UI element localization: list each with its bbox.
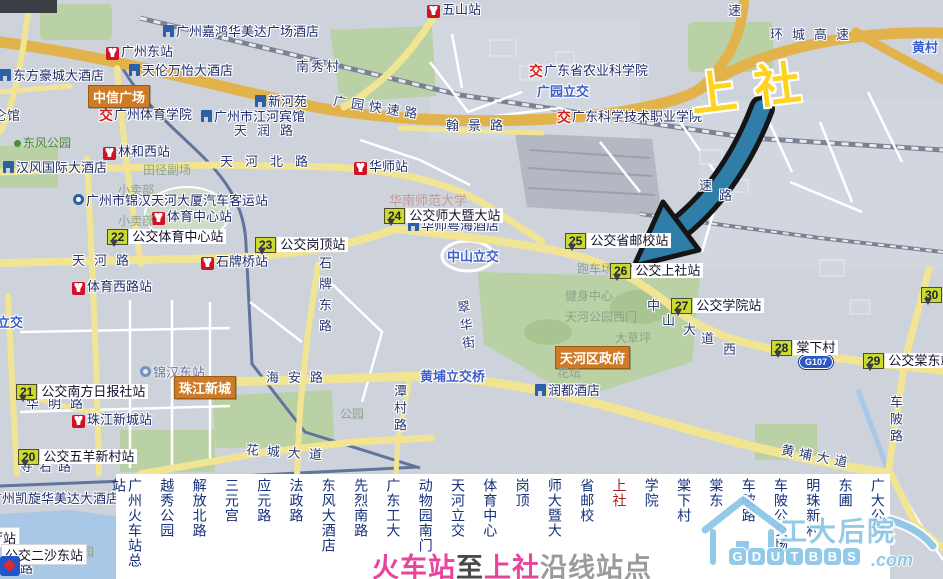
strip-station-5: 应元路 <box>255 478 272 523</box>
strip-station-13: 岗顶 <box>514 478 531 508</box>
strip-station-15: 省邮校 <box>578 478 595 523</box>
strip-station-4: 三元宫 <box>223 478 240 523</box>
road-name-label: 速 <box>728 0 741 19</box>
hotel-icon <box>255 95 266 107</box>
bus-marker-30[interactable]: 30 <box>921 287 942 303</box>
metro-icon: Y <box>106 47 119 60</box>
metro-station-label: Y体育西路站 <box>72 280 152 295</box>
strip-station-12: 体育中心 <box>481 478 498 538</box>
hotel-label: 润都酒店 <box>535 384 600 399</box>
strip-station-10: 动物园南门 <box>417 478 434 553</box>
campus-label: 华南师范大学 <box>389 190 467 209</box>
strip-station-9: 广东工大 <box>384 478 401 538</box>
marker-number[interactable]: 22 <box>107 229 128 245</box>
marker-label: 公交师大暨大站 <box>406 208 503 223</box>
metro-icon: Y <box>354 162 367 175</box>
logo-tile-letter: B <box>805 548 822 565</box>
area-name-box: 珠江新城 <box>174 376 236 399</box>
road-name-label: 路 <box>719 185 732 204</box>
logo-domain-suffix: .com <box>871 550 913 571</box>
marker-label: 棠下村 <box>793 340 838 355</box>
bus-marker-28[interactable]: 28棠下村 <box>771 340 838 356</box>
route-caption: 火车站至上社沿线站点 <box>372 546 652 579</box>
bus-marker-24[interactable]: 24公交师大暨大站 <box>384 208 503 224</box>
road-name-label: 环城高速 <box>770 24 858 43</box>
hotel-icon <box>163 25 174 37</box>
strip-station-14: 师大暨大 <box>546 478 563 538</box>
bus-marker-26[interactable]: 26公交上社站 <box>610 263 703 279</box>
logo-tile-letter: B <box>824 548 841 565</box>
institution-label: 交广东省农业科学院 <box>529 64 648 79</box>
minor-place-label: 田径副场 <box>143 161 191 178</box>
metro-station-label: Y五山站 <box>427 3 481 18</box>
marker-label: 公交上社站 <box>632 263 703 278</box>
interchange-label: 广园立交 <box>537 81 589 100</box>
g107-road-shield: G107 <box>799 355 833 369</box>
metro-station-label: Y体育中心站 <box>152 210 232 225</box>
institution-label: 交广东科学技术职业学院 <box>557 110 702 125</box>
hotel-icon <box>535 384 546 396</box>
hotel-label: 东方豪城大酒店 <box>0 69 104 84</box>
road-name-label: 广园快速路 <box>332 90 424 123</box>
logo-tile-letter: D <box>748 548 765 565</box>
bus-marker-27[interactable]: 27公交学院站 <box>671 298 764 314</box>
road-name-char: 西 <box>723 339 736 358</box>
hotel-label: 广州嘉鸿华美达广场酒店 <box>163 25 319 40</box>
map-logo-icon <box>0 556 20 576</box>
jiao-icon: 交 <box>557 109 571 125</box>
road-name-label: 花城大道 <box>245 439 330 464</box>
strip-station-7: 东风大酒店 <box>320 478 337 553</box>
road-name-label: 翠华街 <box>452 299 478 355</box>
road-name-label: 翰景路 <box>446 115 512 134</box>
marker-label: 公交五羊新村站 <box>40 449 137 464</box>
road-name-label: 仑馆 <box>0 105 20 124</box>
marker-label: 公交省邮校站 <box>587 233 671 248</box>
road-name-label: 潭村路 <box>390 384 409 435</box>
marker-number[interactable]: 24 <box>384 208 405 224</box>
interchange-label: 黄村 <box>912 37 938 56</box>
bus-marker-21[interactable]: 21公交南方日报社站 <box>16 384 148 400</box>
cropped-label-box <box>0 0 57 13</box>
minor-place-label: 大草坪 <box>615 329 651 346</box>
strip-station-11: 天河立交 <box>449 478 466 538</box>
minor-place-label: 健身中心 <box>565 287 613 304</box>
logo-tile-letter: T <box>786 548 803 565</box>
minor-place-label: 东风公园 <box>14 134 71 151</box>
caption-segment: 上社 <box>484 553 540 579</box>
caption-segment: 至 <box>456 553 484 579</box>
strip-station-1: 广州火车站总站 <box>126 478 143 579</box>
hotel-label: 天伦万怡大酒店 <box>129 64 233 79</box>
road-name-char: 大 <box>683 319 696 338</box>
hotel-label: 汉风国际大酒店 <box>3 161 107 176</box>
metro-icon: Y <box>103 147 116 160</box>
marker-label: 公交体育中心站 <box>129 229 226 244</box>
marker-number[interactable]: 25 <box>565 233 586 249</box>
hotel-icon <box>129 64 140 76</box>
logo-tile-letter: G <box>729 548 746 565</box>
road-name-label: 车陂路 <box>886 395 905 446</box>
hotel-label: 广州凯旋华美达大酒店 <box>0 492 119 507</box>
hotel-label: 新河苑 <box>255 95 307 110</box>
marker-number[interactable]: 26 <box>610 263 631 279</box>
minor-place-label: 公园 <box>340 405 364 422</box>
metro-station-label: Y广州东站 <box>106 45 173 60</box>
minor-place-label: 小卖部 <box>118 212 154 229</box>
road-name-label: 天河北路 <box>220 151 320 170</box>
minor-place-label: 天河公园西门 <box>565 308 637 325</box>
coach-icon <box>140 366 151 377</box>
jiao-icon: 交 <box>529 63 543 79</box>
marker-label: 公交学院站 <box>693 298 764 313</box>
road-name-label: 速 <box>699 175 712 194</box>
strip-station-2: 越秀公园 <box>158 478 175 538</box>
hotel-icon <box>0 69 11 81</box>
metro-station-label: Y珠江新城站 <box>72 413 152 428</box>
strip-station-18: 棠下村 <box>675 478 692 523</box>
bus-marker-22[interactable]: 22公交体育中心站 <box>107 229 226 245</box>
metro-station-label: Y华师站 <box>354 160 408 175</box>
map-screenshot: Y广州东站Y五山站Y林和西站Y体育中心站Y华师站Y石牌桥站Y体育西路站Y珠江新城… <box>0 0 943 579</box>
strip-station-3: 解放北路 <box>191 478 208 538</box>
road-name-label: 石牌东路 <box>315 256 334 340</box>
hotel-icon <box>3 161 14 173</box>
marker-label: 公交岗顶站 <box>277 237 348 252</box>
road-name-label: 天河路 <box>72 250 138 269</box>
metro-icon: Y <box>72 415 85 428</box>
park-dot-icon <box>14 140 21 147</box>
bus-marker-25[interactable]: 25公交省邮校站 <box>565 233 671 249</box>
road-name-label: 南秀村 <box>296 56 341 75</box>
institution-label: 交广州体育学院 <box>99 108 192 123</box>
road-name-char: 中 <box>647 295 660 314</box>
road-name-label: 海安路 <box>266 367 332 386</box>
metro-icon: Y <box>427 5 440 18</box>
marker-label: 公交南方日报社站 <box>38 384 148 399</box>
logo-tile-letter: S <box>843 548 860 565</box>
marker-number[interactable]: 29 <box>863 353 884 369</box>
marker-number[interactable]: 30 <box>921 287 942 303</box>
interchange-label: 中山立交 <box>447 246 499 265</box>
strip-station-16: 上社 <box>611 478 628 508</box>
metro-icon: Y <box>72 282 85 295</box>
strip-station-17: 学院 <box>643 478 660 508</box>
logo-tile-letter: U <box>767 548 784 565</box>
marker-number[interactable]: 23 <box>255 237 276 253</box>
metro-icon: Y <box>201 257 214 270</box>
marker-number[interactable]: 21 <box>16 384 37 400</box>
logo-chinese-text: 工大后院 <box>780 510 896 549</box>
minor-place-label: 跑车场 <box>577 260 613 277</box>
jiao-icon: 交 <box>99 107 113 123</box>
marker-number[interactable]: 27 <box>671 298 692 314</box>
road-name-label: 天润路 <box>234 120 303 139</box>
strip-station-8: 先烈南路 <box>352 478 369 538</box>
gdutbbs-watermark: 工大后院 GDUTBBS .com <box>695 488 943 579</box>
minor-place-label: 花坛 <box>557 364 581 381</box>
minor-place-label: 小卖部 <box>118 181 154 198</box>
metro-station-label: Y林和西站 <box>103 145 170 160</box>
bus-marker-23[interactable]: 23公交岗顶站 <box>255 237 348 253</box>
interchange-label: 黄埔立交桥 <box>420 366 485 385</box>
coach-icon <box>73 194 84 205</box>
bus-marker-29[interactable]: 29公交棠东站 <box>863 353 943 369</box>
marker-label: 公交棠东站 <box>885 353 943 368</box>
caption-segment: 沿线站点 <box>540 553 652 579</box>
logo-letter-tiles: GDUTBBS <box>729 548 862 566</box>
road-name-char: 道 <box>701 328 714 347</box>
marker-number[interactable]: 20 <box>18 449 39 465</box>
caption-segment: 火车站 <box>372 553 456 579</box>
interchange-label: 路立交 <box>0 312 23 331</box>
coach-station-label: 广州市锦汉天河大厦汽车客运站 <box>73 194 268 208</box>
road-name-label: 黄埔大道 <box>780 439 854 471</box>
hotel-icon <box>201 110 212 122</box>
bus-marker-20[interactable]: 20公交五羊新村站 <box>18 449 137 465</box>
marker-number[interactable]: 28 <box>771 340 792 356</box>
area-name-box: 中信广场 <box>88 85 150 108</box>
strip-station-6: 法政路 <box>288 478 305 523</box>
